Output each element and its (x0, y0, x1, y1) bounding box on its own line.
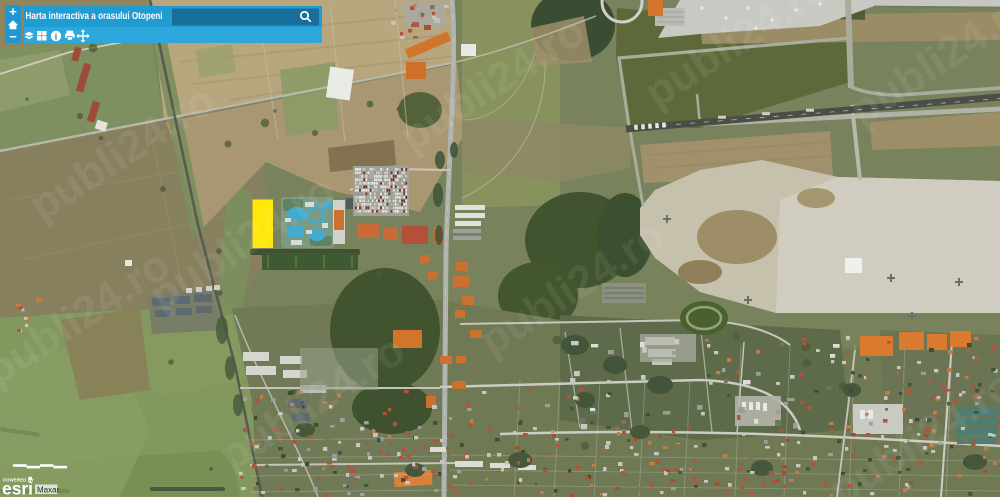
svg-text:−: − (9, 29, 17, 44)
svg-text:Harta interactiva a orasului O: Harta interactiva a orasului Otopeni (26, 10, 163, 22)
svg-text:+: + (9, 4, 17, 19)
svg-text:Maxar: Maxar (37, 485, 60, 494)
svg-text:esri: esri (2, 479, 33, 497)
svg-text:i: i (55, 33, 58, 43)
